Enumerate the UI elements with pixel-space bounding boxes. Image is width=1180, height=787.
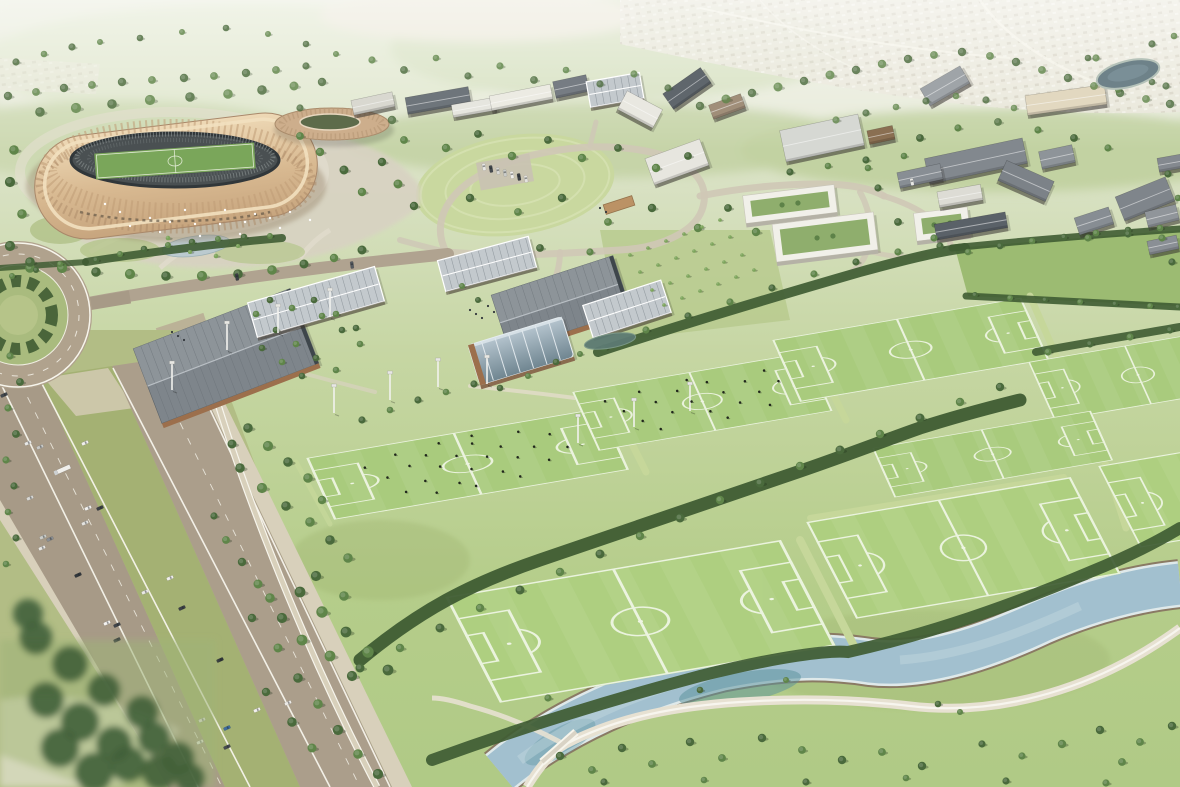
person-dot <box>199 235 201 237</box>
person-dot <box>475 313 477 315</box>
player-dot <box>405 491 408 494</box>
player-dot <box>458 482 461 485</box>
person-dot <box>171 331 173 333</box>
person-dot <box>269 217 271 219</box>
person-dot <box>481 317 483 319</box>
scene-canvas <box>0 0 1180 787</box>
aerial-render <box>0 0 1180 787</box>
foreground-tree <box>41 729 80 768</box>
player-dot <box>516 456 519 459</box>
person-dot <box>149 217 151 219</box>
person-dot <box>599 207 601 209</box>
player-dot <box>706 381 709 384</box>
player-dot <box>519 475 522 478</box>
player-dot <box>533 445 536 448</box>
player-dot <box>566 446 569 449</box>
player-dot <box>722 391 725 394</box>
player-dot <box>777 380 780 383</box>
person-dot <box>194 223 196 225</box>
player-dot <box>641 420 644 423</box>
player-dot <box>744 380 747 383</box>
person-dot <box>289 211 291 213</box>
player-dot <box>455 455 458 458</box>
player-dot <box>424 480 427 483</box>
foreground-tree <box>110 746 146 782</box>
player-dot <box>502 470 505 473</box>
player-dot <box>655 401 658 404</box>
person-dot <box>119 211 121 213</box>
player-dot <box>671 411 674 414</box>
player-dot <box>758 391 761 394</box>
foreground-tree <box>88 674 121 707</box>
player-dot <box>623 410 626 413</box>
player-dot <box>548 433 551 436</box>
person-dot <box>224 209 226 211</box>
player-dot <box>394 453 397 456</box>
person-dot <box>169 221 171 223</box>
player-dot <box>386 476 389 479</box>
player-dot <box>709 410 712 413</box>
rough-grass <box>290 520 470 600</box>
player-dot <box>439 465 442 468</box>
person-dot <box>239 233 241 235</box>
player-dot <box>690 400 693 403</box>
player-dot <box>425 454 428 457</box>
player-dot <box>486 455 489 458</box>
player-dot <box>364 466 367 469</box>
person-dot <box>219 223 221 225</box>
player-dot <box>499 445 502 448</box>
player-dot <box>437 442 440 445</box>
player-dot <box>471 442 474 445</box>
player-dot <box>685 379 688 382</box>
person-dot <box>493 311 495 313</box>
person-dot <box>309 219 311 221</box>
person-dot <box>605 211 607 213</box>
player-dot <box>470 468 473 471</box>
player-dot <box>659 428 662 431</box>
player-dot <box>638 390 641 393</box>
foreground-tree <box>28 682 64 718</box>
player-dot <box>408 465 411 468</box>
person-dot <box>104 203 106 205</box>
player-dot <box>676 390 679 393</box>
person-dot <box>279 227 281 229</box>
person-dot <box>177 335 179 337</box>
player-dot <box>470 434 473 437</box>
player-dot <box>769 404 772 407</box>
foreground-tree <box>52 646 88 682</box>
person-dot <box>487 305 489 307</box>
person-dot <box>129 225 131 227</box>
player-dot <box>475 485 478 488</box>
player-dot <box>739 401 742 404</box>
person-dot <box>159 231 161 233</box>
person-dot <box>254 213 256 215</box>
player-dot <box>548 459 551 462</box>
player-dot <box>604 400 607 403</box>
person-dot <box>184 209 186 211</box>
person-dot <box>183 339 185 341</box>
player-dot <box>517 430 520 433</box>
player-dot <box>763 369 766 372</box>
player-dot <box>435 491 438 494</box>
foreground-tree <box>13 599 43 629</box>
person-dot <box>244 221 246 223</box>
player-dot <box>726 416 729 419</box>
person-dot <box>469 309 471 311</box>
